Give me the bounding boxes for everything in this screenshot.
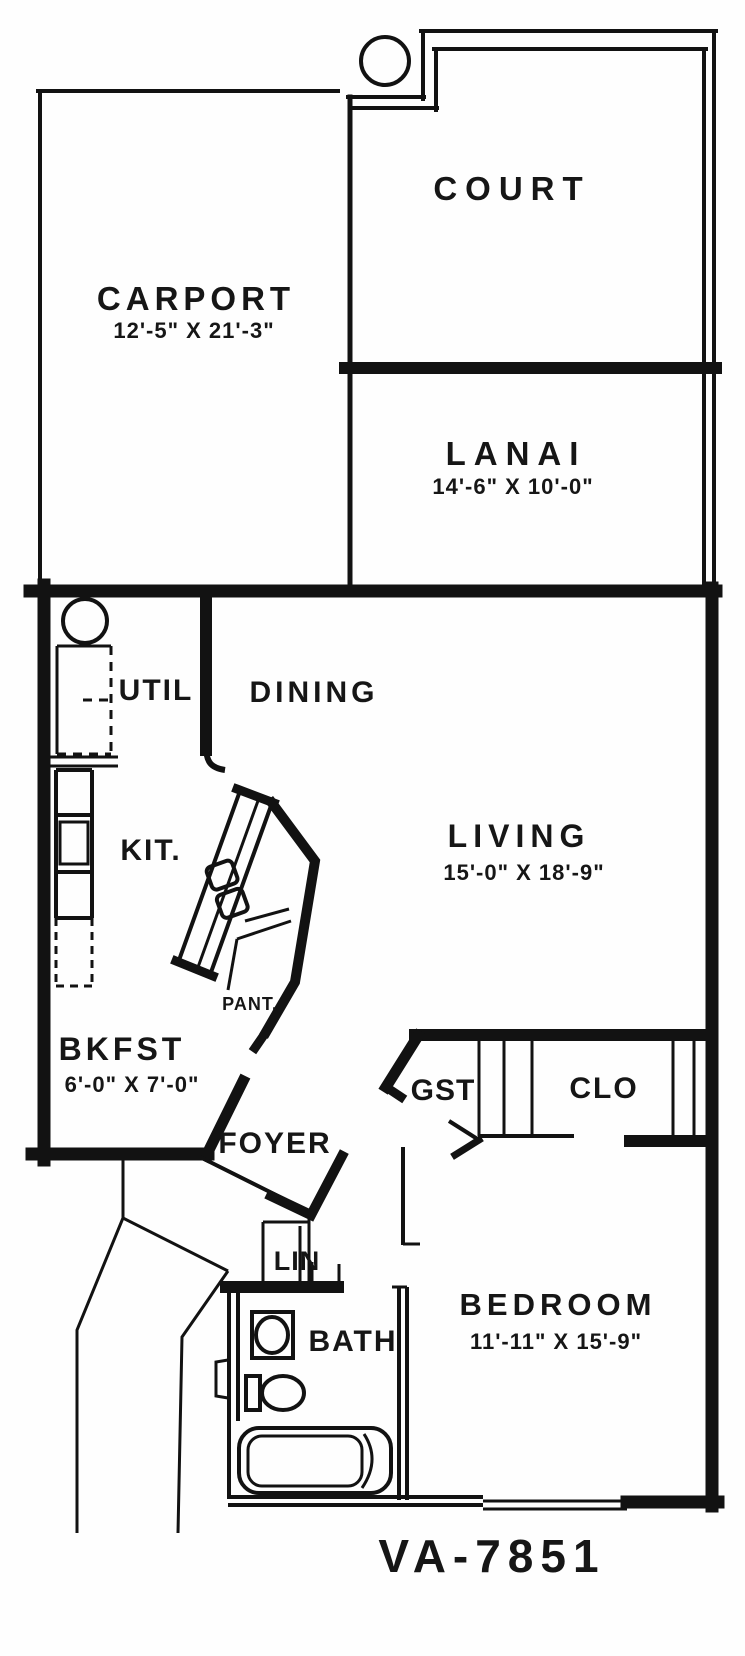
foyer-entry [202, 1156, 342, 1215]
breakfast-label: BKFST [59, 1031, 186, 1067]
lanai-label: LANAI [446, 435, 587, 472]
kitchen-counter [56, 770, 92, 986]
util-label: UTIL [119, 674, 194, 707]
living-label: LIVING [448, 818, 591, 854]
court-label: COURT [433, 170, 590, 207]
kitchen-sink-icon [60, 822, 88, 864]
gst-door-leaf [449, 1121, 479, 1140]
foyer-label: FOYER [218, 1127, 331, 1160]
toilet-bowl-icon [262, 1376, 304, 1410]
gst-label: GST [411, 1074, 476, 1107]
bedroom-dims: 11'-11" X 15'-9" [470, 1329, 642, 1354]
toilet-tank-icon [246, 1376, 260, 1410]
plan-number: VA-7851 [378, 1530, 605, 1582]
kitchen-label: KIT. [120, 834, 181, 867]
breakfast-dims: 6'-0" X 7'-0" [65, 1072, 200, 1097]
bath-sink-bowl [256, 1317, 288, 1353]
carport-dims: 12'-5" X 21'-3" [113, 318, 274, 343]
washer-icon [57, 646, 111, 754]
bedroom-walls [392, 1147, 627, 1509]
water-heater-icon [63, 599, 107, 643]
bedroom-label: BEDROOM [460, 1287, 657, 1322]
bathtub-basin [248, 1436, 362, 1486]
court-walls [348, 31, 716, 588]
floor-plan-sheet: COURT CARPORT 12'-5" X 21'-3" LANAI 14'-… [0, 0, 745, 1656]
kitchen-island [176, 789, 274, 976]
lanai-dims: 14'-6" X 10'-0" [432, 474, 593, 499]
carport-label: CARPORT [97, 280, 295, 317]
clo-label: CLO [569, 1072, 638, 1105]
court-column-icon [361, 37, 409, 85]
bathtub-icon [239, 1428, 391, 1493]
floor-plan-drawing: COURT CARPORT 12'-5" X 21'-3" LANAI 14'-… [0, 0, 745, 1656]
pantry-label: PANT. [222, 994, 278, 1014]
entry-walkway [77, 1160, 228, 1533]
bath-label: BATH [308, 1325, 397, 1358]
living-dims: 15'-0" X 18'-9" [443, 860, 604, 885]
dining-label: DINING [250, 676, 379, 709]
bath-walls [216, 1287, 483, 1505]
linen-label: LIN [274, 1246, 321, 1276]
